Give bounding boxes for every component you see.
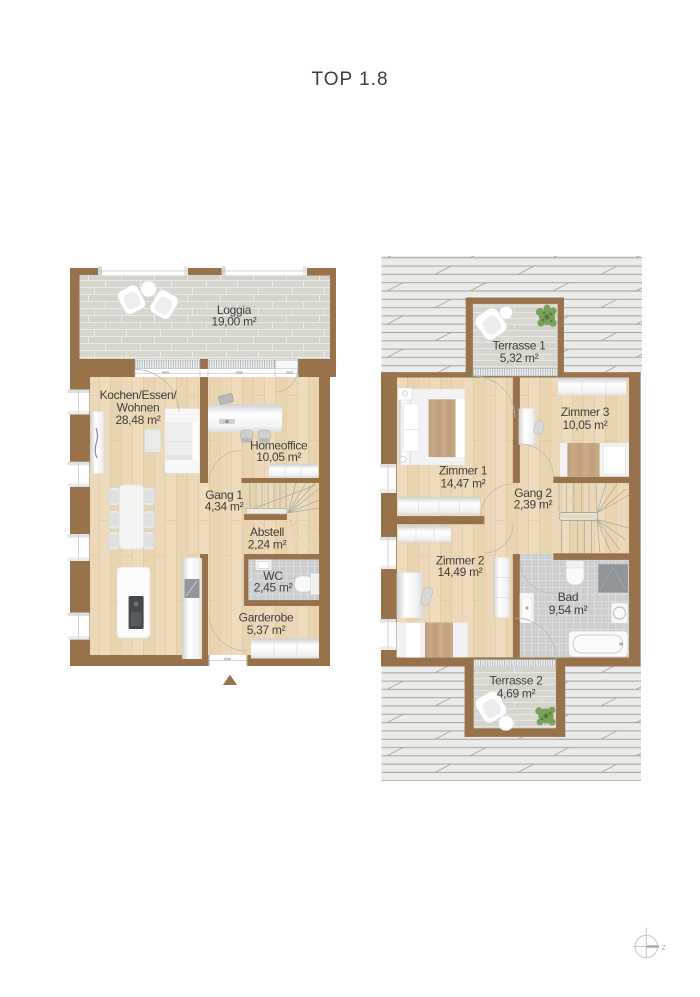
svg-text:4,34 m²: 4,34 m² xyxy=(205,500,244,514)
svg-text:Bad: Bad xyxy=(558,590,578,604)
svg-text:9,54 m²: 9,54 m² xyxy=(549,603,588,617)
svg-text:TOP 1.8: TOP 1.8 xyxy=(311,69,388,90)
svg-text:2,24 m²: 2,24 m² xyxy=(248,538,287,552)
svg-text:14,47 m²: 14,47 m² xyxy=(441,477,486,491)
svg-text:5,37 m²: 5,37 m² xyxy=(247,623,286,637)
svg-text:28,48 m²: 28,48 m² xyxy=(116,413,161,427)
svg-text:Terrasse 2: Terrasse 2 xyxy=(489,674,543,688)
svg-text:z: z xyxy=(662,942,667,952)
svg-text:2,39 m²: 2,39 m² xyxy=(514,498,553,512)
svg-text:10,05 m²: 10,05 m² xyxy=(256,450,301,464)
svg-text:10,05 m²: 10,05 m² xyxy=(563,418,608,432)
svg-text:19,00 m²: 19,00 m² xyxy=(212,315,257,329)
svg-text:Zimmer 1: Zimmer 1 xyxy=(439,464,488,478)
svg-text:4,69 m²: 4,69 m² xyxy=(497,687,536,701)
svg-text:5,32 m²: 5,32 m² xyxy=(500,351,539,365)
svg-text:2,45 m²: 2,45 m² xyxy=(254,581,293,595)
svg-text:14,49 m²: 14,49 m² xyxy=(438,565,483,579)
svg-text:Zimmer 3: Zimmer 3 xyxy=(561,405,610,419)
